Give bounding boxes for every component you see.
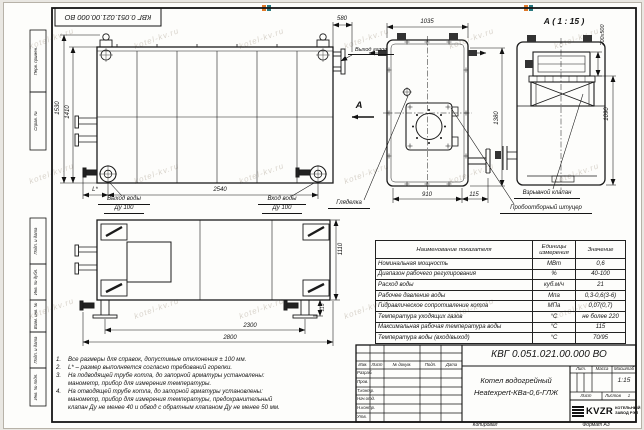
dim-side-inner-height: 1410 — [65, 46, 72, 178]
section-arrow-letter: А — [352, 101, 366, 111]
format-label: Формат А3 — [566, 423, 626, 429]
dim-front-height: 1380 — [494, 59, 501, 177]
front-view-drawing — [369, 33, 490, 190]
spec-cell: куб.м/ч — [533, 280, 576, 291]
dim-side-length: 2540 — [190, 187, 250, 194]
table-row: Расход водыкуб.м/ч21 — [376, 280, 626, 291]
spec-cell: Температура воды (вход/выход) — [376, 333, 533, 344]
tb-col-list: Лист — [370, 363, 384, 368]
spec-cell: 0,3-0,6(3-6) — [576, 290, 626, 301]
company-logo-block: KVZR КОТЕЛЬНЫЙ ЗАВОД РЭП — [572, 402, 634, 420]
notes-block: 1.Все размеры для справок, допустимые от… — [56, 356, 354, 412]
tb-mass-label: Масса — [592, 367, 612, 372]
label-sight-glass: Гляделка — [328, 200, 370, 209]
dim-side-l-star: L* — [84, 187, 106, 194]
tb-role-utv: Утв. — [357, 415, 383, 420]
tb-role-tkontr: Т.контр. — [357, 389, 383, 394]
note-number: 3. — [56, 372, 68, 388]
dim-plan-width: 1110 — [338, 212, 345, 286]
tb-scale-value: 1:15 — [612, 377, 636, 384]
table-row: Номинальная мощностьМВт0,6 — [376, 259, 626, 270]
dim-plan-feet-span: 2300 — [225, 323, 275, 330]
label-sampling-fitting: Пробоотборный штуцер — [500, 205, 592, 214]
dim-side-outer-height: 1530 — [55, 38, 62, 178]
label-water-outlet: Выход воды — [98, 196, 150, 205]
detail-view-title: А ( 1 : 15 ) — [534, 17, 594, 26]
spec-header-value: Значение — [576, 241, 626, 259]
table-header-row: Наименование показателя Единицы измерени… — [376, 241, 626, 259]
label-water-inlet-dn: Ду 100 — [262, 205, 302, 214]
spec-header-units: Единицы измерения — [533, 241, 576, 259]
spec-cell: не более 220 — [576, 311, 626, 322]
dim-front-top-width: 1035 — [397, 19, 457, 26]
spec-cell: 0,6 — [576, 259, 626, 270]
spec-cell: МВт — [533, 259, 576, 270]
dim-front-bottom-width: 910 — [402, 192, 452, 199]
frame-label-podp-data-2: Подп. и дата — [34, 334, 39, 366]
dim-side-gas-offset: 580 — [330, 16, 354, 23]
tb-lit-label: Лит. — [570, 367, 592, 372]
note-text: Все размеры для справок, допустимые откл… — [68, 356, 354, 364]
spec-cell: °С — [533, 333, 576, 344]
dim-plan-overall-length: 2800 — [205, 335, 255, 342]
spec-cell: Максимальная рабочая температура воды — [376, 322, 533, 333]
spec-table: Наименование показателя Единицы измерени… — [375, 240, 626, 344]
tb-role-prov: Пров. — [357, 380, 383, 385]
tb-sheet-label: Лист — [570, 394, 602, 399]
frame-label-perv-primen: Перв. примен. — [34, 32, 39, 90]
table-row: Температура воды (вход/выход)°С70/95 — [376, 333, 626, 344]
tb-scale-label: Масштаб — [612, 367, 636, 372]
tb-sheets-value: 1 — [623, 394, 635, 399]
spec-cell: °С — [533, 311, 576, 322]
frame-label-inv-podl: Инв. № подл. — [34, 370, 39, 404]
spec-cell: Мпа — [533, 290, 576, 301]
spec-header-name: Наименование показателя — [376, 241, 533, 259]
note-number: 1. — [56, 356, 68, 364]
note-item: 2.L* – размер выполняется согласно требо… — [56, 364, 354, 372]
spec-cell: 40-100 — [576, 269, 626, 280]
title-block-doc-number: КВГ 0.051.021.00.000 ВО — [462, 347, 636, 363]
label-explosion-valve: Взрывной клапан — [514, 190, 580, 199]
spec-cell: Гидравлическое сопротивление котла — [376, 301, 533, 312]
note-text: На отводящей трубе котла, до запорной ар… — [68, 388, 354, 412]
note-item: 1.Все размеры для справок, допустимые от… — [56, 356, 354, 364]
note-item: 4.На отводящей трубе котла, до запорной … — [56, 388, 354, 412]
table-row: Диапазон рабочего регулирования%40-100 — [376, 269, 626, 280]
leader-lines — [110, 55, 583, 204]
tb-sheets-label: Листов — [602, 394, 624, 399]
dim-front-fitting-offset: 115 — [463, 192, 485, 199]
frame-label-vzam-inv: Взам. инв. № — [34, 302, 39, 330]
spec-cell: Расход воды — [376, 280, 533, 291]
note-item: 3.На подводящей трубе котла, до запорной… — [56, 372, 354, 388]
tb-role-nkontr: Н.контр. — [357, 406, 383, 411]
spec-cell: Диапазон рабочего регулирования — [376, 269, 533, 280]
tb-role-razrab: Разраб. — [357, 371, 383, 376]
spec-cell: 0,07(0,7) — [576, 301, 626, 312]
plan-view-drawing — [75, 220, 330, 318]
label-water-inlet: Вход воды — [258, 196, 306, 205]
spec-cell: 115 — [576, 322, 626, 333]
label-water-outlet-dn: Ду 100 — [104, 205, 144, 214]
detail-view-drawing — [495, 35, 605, 190]
tb-col-podp: Подп. — [420, 363, 441, 368]
table-row: Рабочее давление водыМпа0,3-0,6(3-6) — [376, 290, 626, 301]
table-row: Максимальная рабочая температура воды°С1… — [376, 322, 626, 333]
title-block-product-line2: Heatexpert-КВа-0,6-ГЛЖ — [462, 389, 570, 397]
note-text: L* – размер выполняется согласно требова… — [68, 364, 354, 372]
spec-cell: % — [533, 269, 576, 280]
spec-cell: °С — [533, 322, 576, 333]
table-row: Температура уходящих газов°Сне более 220 — [376, 311, 626, 322]
frame-label-inv-dubl: Инв. № дубл. — [34, 266, 39, 298]
table-row: Гидравлическое сопротивление котлаМПа0,0… — [376, 301, 626, 312]
tb-col-izm: Изм. — [356, 363, 370, 368]
dim-detail-duct: 200x500 — [600, 12, 606, 58]
spec-cell: 70/95 — [576, 333, 626, 344]
company-name: КОТЕЛЬНЫЙ ЗАВОД РЭП — [615, 406, 640, 415]
side-view-drawing — [75, 34, 345, 183]
frame-label-podp-data-1: Подп. и дата — [34, 220, 39, 262]
dim-plan-support: 115 — [321, 299, 327, 316]
scanned-drawing-page: kotel-kv.rukotel-kv.rukotel-kv.rukotel-k… — [0, 0, 644, 430]
note-text: На подводящей трубе котла, до запорной а… — [68, 372, 354, 388]
spec-cell: 21 — [576, 280, 626, 291]
note-number: 2. — [56, 364, 68, 372]
spec-cell: Номинальная мощность — [376, 259, 533, 270]
copied-label: Копировал — [455, 423, 515, 429]
frame-label-sprav-no: Справ. № — [34, 94, 39, 148]
kvzr-logo-icon — [572, 405, 584, 417]
note-number: 4. — [56, 388, 68, 412]
doc-number-stamp-rotated: КВГ 0.051.021.00.000 ВО — [56, 10, 160, 24]
company-name-line2: ЗАВОД РЭП — [615, 411, 640, 416]
dim-detail-height: 1090 — [604, 73, 611, 155]
spec-cell: Температура уходящих газов — [376, 311, 533, 322]
spec-cell: Рабочее давление воды — [376, 290, 533, 301]
kvzr-logo-text: KVZR — [586, 406, 613, 417]
title-block-product-line1: Котел водогрейный — [462, 377, 570, 385]
tb-col-data: Дата — [441, 363, 462, 368]
label-gas-outlet: Выход газов — [348, 47, 394, 55]
tb-role-nachotd: Нач.отд. — [357, 397, 383, 402]
spec-cell: МПа — [533, 301, 576, 312]
tb-col-docnum: № докум. — [384, 363, 420, 368]
